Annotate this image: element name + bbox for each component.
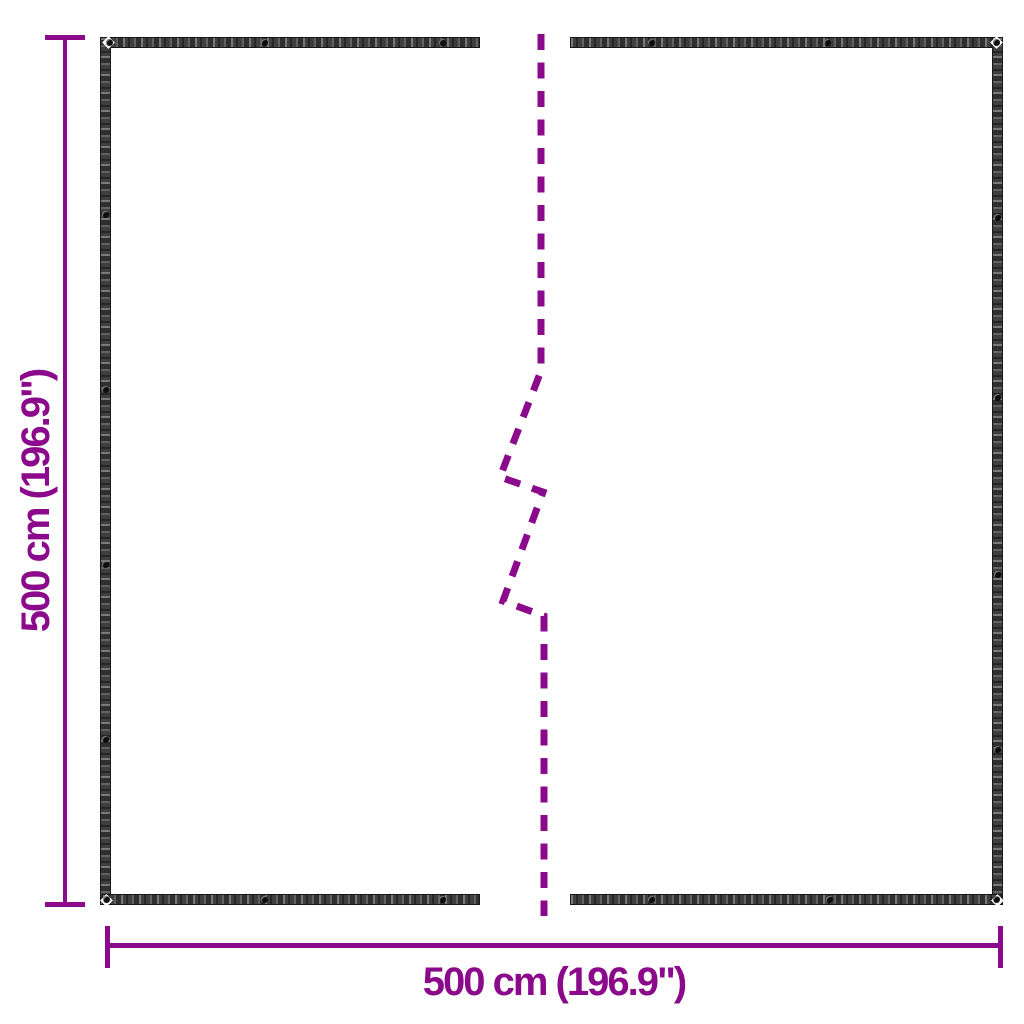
grommet-icon [994,394,1001,401]
grommet-icon [993,896,1000,903]
grommet-icon [102,736,109,743]
grommet-icon [994,746,1001,753]
grommet-icon [824,39,831,46]
grommet-icon [102,561,109,568]
grommet-icon [648,896,655,903]
tarp-left-bottom-edge [102,894,480,905]
width-dimension-right-cap [998,926,1003,968]
height-dimension-label: 500 cm (196.9") [16,351,56,651]
tarp-right-right-edge [992,37,1003,905]
tarp-left-top-edge [104,37,480,48]
grommet-icon [994,571,1001,578]
width-dimension-label: 500 cm (196.9") [304,962,804,1002]
grommet-icon [826,896,833,903]
height-dimension-bottom-cap [45,902,85,907]
product-dimension-diagram: 500 cm (196.9") 500 cm (196.9") [0,0,1024,1024]
width-dimension-line [107,943,1001,948]
grommet-icon [648,39,655,46]
height-dimension-line [63,37,67,905]
grommet-icon [102,211,109,218]
grommet-icon [261,896,268,903]
grommet-icon [103,896,110,903]
break-line-icon [0,0,1024,1024]
tarp-right-bottom-edge [570,894,1002,905]
grommet-icon [439,896,446,903]
width-dimension-left-cap [105,926,110,968]
grommet-icon [106,39,113,46]
tarp-left-left-edge [100,37,111,905]
height-dimension-top-cap [45,35,85,40]
grommet-icon [102,386,109,393]
grommet-icon [439,39,446,46]
tarp-right-top-edge [570,37,1000,48]
grommet-icon [994,214,1001,221]
grommet-icon [261,39,268,46]
grommet-icon [993,39,1000,46]
